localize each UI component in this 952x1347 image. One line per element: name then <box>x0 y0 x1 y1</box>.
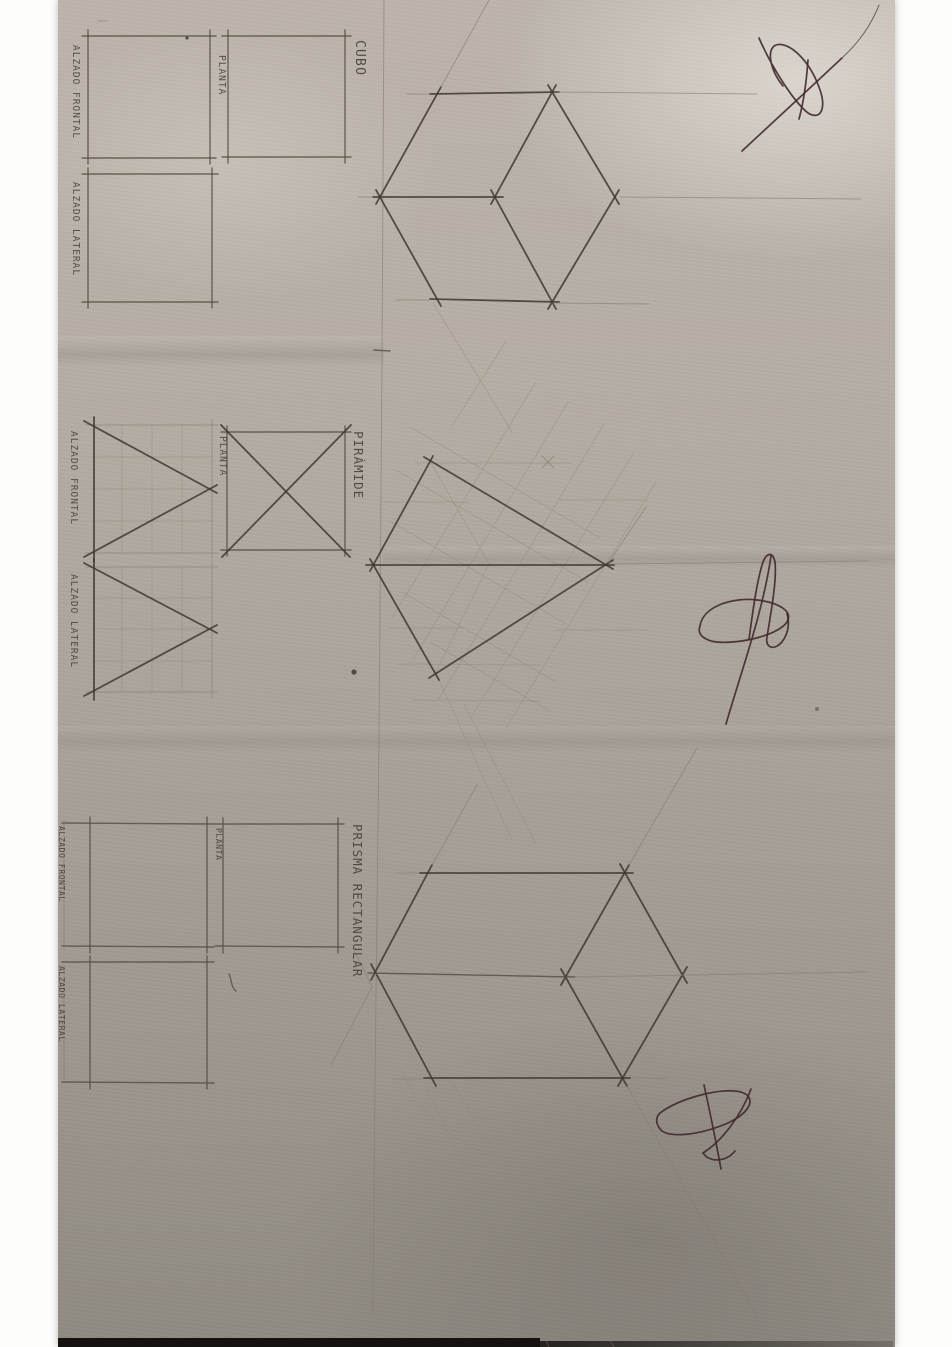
label-prism-front-view: ALZADO FRONTAL <box>57 826 65 902</box>
pyramid-side-view <box>84 559 218 700</box>
signature-bottom-right <box>657 1085 751 1230</box>
prism-plan-view <box>215 818 344 953</box>
pencil-smudges <box>229 669 819 991</box>
prism-isometric-drawing <box>368 748 868 1347</box>
label-pyramid-title: PIRÁMIDE <box>352 431 365 499</box>
photo-of-drawing-sheet: ALZADO FRONTAL PLANTA CUBO ALZADO LATERA… <box>0 0 952 1347</box>
label-cube-side-view: ALZADO LATERAL <box>70 182 80 276</box>
label-pyramid-front-view: ALZADO FRONTAL <box>68 431 78 525</box>
cube-plan-view-square <box>222 30 351 163</box>
label-pyramid-plan-view: PLANTA <box>217 436 227 476</box>
prism-side-view <box>62 956 214 1089</box>
label-pyramid-side-view: ALZADO LATERAL <box>68 574 78 668</box>
label-cube-title: CUBO <box>352 40 366 76</box>
cube-isometric-drawing <box>358 0 861 309</box>
pencil-drawing-layer <box>0 0 952 1347</box>
label-prism-plan-view: PLANTA <box>214 828 222 861</box>
pyramid-plan-view <box>221 425 351 557</box>
signature-top-right <box>742 5 879 151</box>
pyramid-isometric-drawing <box>366 303 868 844</box>
label-cube-plan-view: PLANTA <box>216 55 226 95</box>
signature-middle-right <box>699 555 788 725</box>
label-prism-side-view: ALZADO LATERAL <box>57 966 65 1042</box>
pyramid-front-view <box>84 417 218 561</box>
cube-side-view-square <box>82 168 218 308</box>
cube-front-view-square <box>82 21 216 164</box>
label-prism-title: PRISMA RECTANGULAR <box>351 824 364 977</box>
label-cube-front-view: ALZADO FRONTAL <box>70 45 80 139</box>
prism-front-view <box>62 817 214 953</box>
